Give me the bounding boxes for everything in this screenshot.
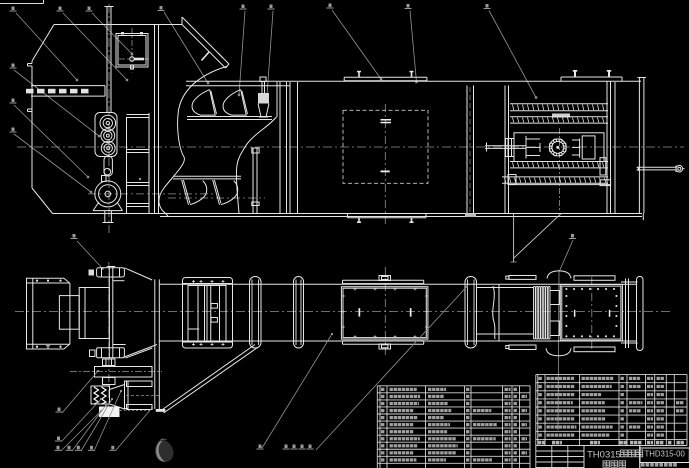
svg-text:TH0315: TH0315 [587,450,621,461]
svg-text:THD315-00: THD315-00 [645,450,686,459]
